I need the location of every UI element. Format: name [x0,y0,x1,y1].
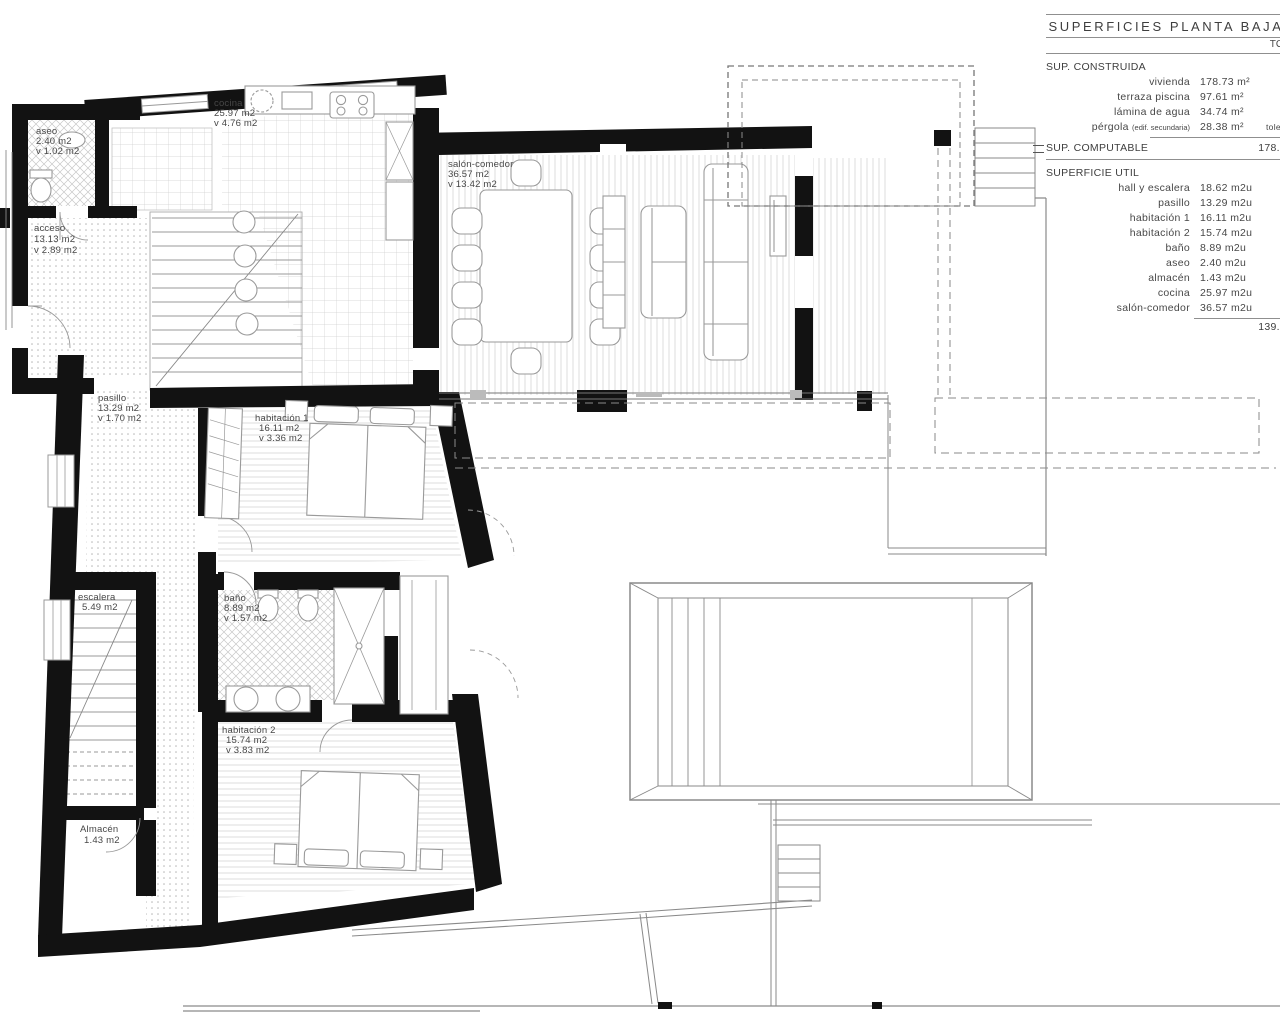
row-value: 97.61 m² [1200,90,1264,105]
table-row: pasillo 13.29 m2u [1046,196,1280,211]
row-label: hall y escalera [1046,181,1190,196]
row-value: 15.74 m2u [1200,226,1264,241]
table-row: habitación 2 15.74 m2u [1046,226,1280,241]
row-value: 28.38 m² [1200,120,1264,135]
row-value: 2.40 m2u [1200,256,1264,271]
svg-text:v 1.70 m2: v 1.70 m2 [98,413,142,424]
table-row: baño 8.89 m2u [1046,241,1280,256]
hall-landing-floor [112,128,212,210]
svg-text:13.13 m2: 13.13 m2 [34,234,75,245]
deck-strip [813,158,888,394]
toilet [31,178,51,202]
stool [236,313,258,335]
row-value: 16.11 m2u [1200,211,1264,226]
computable-value: 178.7 [1258,140,1280,157]
svg-text:v 3.36 m2: v 3.36 m2 [259,433,303,444]
row-value: 8.89 m2u [1200,241,1264,256]
bidet [298,595,318,621]
tv-unit [770,196,786,256]
row-value: 18.62 m2u [1200,181,1264,196]
sup-computable-row: SUP. COMPUTABLE 178.7 [1046,140,1280,157]
pool-steps [672,598,720,786]
row-value: 36.57 m2u [1200,301,1264,316]
table-row: cocina 25.97 m2u [1046,286,1280,301]
table-row: vivienda 178.73 m² [1046,75,1280,90]
table-row: terraza piscina 97.61 m² [1046,90,1280,105]
svg-text:v 4.76 m2: v 4.76 m2 [214,118,258,129]
sink [234,687,258,711]
computable-hatch-icon [1033,145,1044,153]
table-row: habitación 1 16.11 m2u [1046,211,1280,226]
svg-text:v 2.89 m2: v 2.89 m2 [34,245,78,256]
row-label: vivienda [1046,75,1190,90]
row-label: pasillo [1046,196,1190,211]
row-label: habitación 2 [1046,226,1190,241]
svg-text:5.49 m2: 5.49 m2 [82,602,118,613]
pillar [857,391,872,411]
divider [1046,159,1280,160]
row-extra: toler [1266,120,1280,135]
stool [233,211,255,233]
util-total: 139.0 [1046,319,1280,335]
svg-text:v 3.83 m2: v 3.83 m2 [226,745,270,756]
cooktop [330,92,374,118]
row-label: pérgola (edif. secundaria) [1046,120,1190,135]
row-value: 178.73 m² [1200,75,1264,90]
sup-construida-label: SUP. CONSTRUIDA [1046,61,1280,73]
terrace-steps [975,128,1035,206]
row-value: 34.74 m² [1200,105,1264,120]
divider [1046,53,1280,54]
room-label-almacen: Almacén [80,824,118,835]
row-label: habitación 1 [1046,211,1190,226]
table-row: almacén 1.43 m2u [1046,271,1280,286]
nightstand [430,405,453,426]
row-value: 25.97 m2u [1200,286,1264,301]
pillow [370,407,415,425]
table-header-right: TO [1046,38,1280,53]
computable-label: SUP. COMPUTABLE [1046,140,1258,157]
pillow [314,405,359,423]
row-label: baño [1046,241,1190,256]
row-value: 1.43 m2u [1200,271,1264,286]
row-label: cocina [1046,286,1190,301]
divider [1150,137,1280,138]
pergola-pillar [934,130,951,146]
table-row: hall y escalera 18.62 m2u [1046,181,1280,196]
row-note: (edif. secundaria) [1132,123,1190,132]
pool-inner [658,598,1008,786]
nightstand [274,844,297,865]
table-row: pérgola (edif. secundaria) 28.38 m² tole… [1046,120,1280,135]
areas-panel: SUPERFICIES PLANTA BAJA TO SUP. CONSTRUI… [1046,14,1280,335]
row-label: almacén [1046,271,1190,286]
row-label: aseo [1046,256,1190,271]
svg-text:v 1.57 m2: v 1.57 m2 [224,613,268,624]
nightstand [420,849,443,870]
row-label: terraza piscina [1046,90,1190,105]
superficie-util-label: SUPERFICIE UTIL [1046,167,1280,179]
row-value: 13.29 m2u [1200,196,1264,211]
south-wall [38,888,474,957]
svg-text:v 1.02 m2: v 1.02 m2 [36,146,80,157]
pillow [304,849,349,867]
table-row: salón-comedor 36.57 m2u [1046,301,1280,316]
toilet-tank [30,170,52,178]
floorplan-sheet: aseo 2.40 m2 v 1.02 m2 acceso 13.13 m2 v… [0,0,1280,1024]
row-label: salón-comedor [1046,301,1190,316]
table-row: lámina de agua 34.74 m² [1046,105,1280,120]
svg-text:1.43 m2: 1.43 m2 [84,835,120,846]
row-label: lámina de agua [1046,105,1190,120]
table-row: aseo 2.40 m2u [1046,256,1280,271]
closet [400,576,448,714]
stool [235,279,257,301]
dining-table [480,190,572,342]
pillow [360,851,405,869]
stool [234,245,256,267]
svg-text:v 13.42 m2: v 13.42 m2 [448,179,497,190]
pool [630,583,1032,800]
escalera-stairs [66,600,136,794]
table-title: SUPERFICIES PLANTA BAJA [1046,15,1280,37]
room-label-acceso: acceso [34,223,65,234]
sink [276,687,300,711]
